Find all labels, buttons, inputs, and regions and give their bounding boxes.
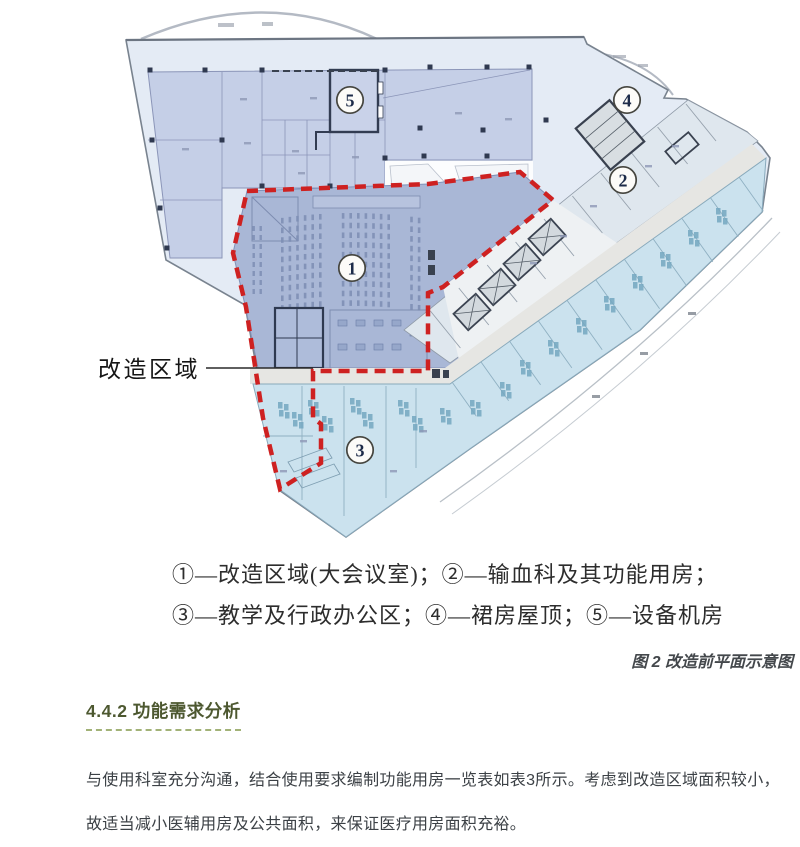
label-mark — [300, 440, 307, 442]
seat-mark — [319, 224, 322, 230]
seat-mark — [296, 255, 299, 261]
furniture-mark — [549, 348, 554, 355]
furniture-mark — [405, 410, 410, 417]
furniture-mark — [292, 412, 297, 419]
seat-mark — [410, 294, 413, 300]
seat-mark — [357, 223, 360, 229]
region-marker-3: 3 — [347, 437, 373, 463]
seat-mark — [311, 253, 314, 259]
furniture-mark — [447, 418, 452, 425]
furniture-mark — [278, 402, 283, 409]
seat-mark — [296, 274, 299, 280]
column-dot — [260, 184, 265, 189]
column-dot — [485, 154, 490, 159]
seat-mark — [372, 262, 375, 268]
label-mark — [455, 112, 462, 114]
seat-mark — [289, 294, 292, 300]
furniture-mark — [576, 318, 581, 325]
marker-digit: 5 — [346, 91, 355, 111]
seat-mark — [372, 291, 375, 297]
seat-mark — [365, 281, 368, 287]
seat-mark — [311, 273, 314, 279]
seat-mark — [387, 244, 390, 250]
furniture-mark — [527, 370, 532, 377]
seat-mark — [357, 242, 360, 248]
seat-mark — [253, 226, 255, 231]
seat-mark — [349, 232, 352, 238]
furniture-mark — [548, 340, 553, 347]
body-line-1: 与使用科室充分沟通，结合使用要求编制功能用房一览表如表3所示。考虑到改造区域面积… — [86, 759, 800, 803]
seat-mark — [289, 217, 292, 223]
seat-mark — [304, 273, 307, 279]
column-dot — [544, 118, 549, 123]
seat-mark — [296, 294, 299, 300]
furniture-mark — [356, 400, 361, 407]
seat-mark — [418, 218, 421, 224]
label-mark — [530, 262, 537, 264]
seat-mark — [349, 291, 352, 297]
seat-mark — [380, 282, 383, 288]
seat-mark — [311, 302, 314, 308]
furniture-mark — [689, 238, 694, 245]
seat-mark — [311, 263, 314, 269]
seat-mark — [253, 262, 255, 267]
furniture-mark — [722, 210, 727, 217]
seat-mark — [289, 246, 292, 252]
seat-mark — [289, 275, 292, 281]
figure-key: ①—改造区域(大会议室)；②—输血科及其功能用房； ③—教学及行政办公区；④—裙… — [172, 554, 800, 636]
furniture-mark — [418, 418, 423, 425]
furniture-mark — [605, 304, 610, 311]
furniture-mark — [298, 414, 303, 421]
column-dot — [260, 68, 265, 73]
seat-mark — [281, 237, 284, 243]
seat-mark — [410, 226, 413, 232]
seat-mark — [372, 233, 375, 239]
column-dot — [150, 138, 155, 143]
seat-mark — [410, 275, 413, 281]
seat-mark — [418, 266, 421, 272]
seat-mark — [349, 242, 352, 248]
seat-mark — [410, 236, 413, 242]
furniture-mark — [520, 360, 525, 367]
seat-mark — [380, 224, 383, 230]
furniture-mark — [293, 420, 298, 427]
seat-mark — [281, 276, 284, 282]
seat-mark — [410, 255, 413, 261]
seat-mark — [289, 285, 292, 291]
seat-mark — [296, 245, 299, 251]
seat-mark — [365, 291, 368, 297]
seat-mark — [410, 304, 413, 310]
seat-mark — [372, 301, 375, 307]
furniture-mark — [501, 390, 506, 397]
seat-mark — [260, 280, 262, 285]
seat-mark — [357, 300, 360, 306]
furniture-mark — [285, 412, 290, 419]
furniture-mark — [667, 262, 672, 269]
column-dot — [383, 68, 388, 73]
marker-digit: 2 — [619, 171, 628, 191]
seat-mark — [418, 286, 421, 292]
wall-mark — [443, 370, 449, 378]
seat-mark — [357, 213, 360, 219]
seat-mark — [281, 247, 284, 253]
seat-mark — [319, 292, 322, 298]
seat-mark — [289, 265, 292, 271]
door-mark — [378, 82, 383, 94]
seat-mark — [380, 272, 383, 278]
section-heading: 4.4.2 功能需求分析 — [86, 698, 241, 731]
seat-mark — [342, 223, 345, 229]
seat-mark — [304, 264, 307, 270]
furniture-mark — [322, 416, 327, 423]
seat-mark — [380, 292, 383, 298]
figure-key-line1: ①—改造区域(大会议室)；②—输血科及其功能用房； — [172, 554, 800, 595]
seat-mark — [342, 281, 345, 287]
seat-mark — [380, 243, 383, 249]
stage — [313, 196, 420, 208]
seat-mark — [342, 242, 345, 248]
seat-mark — [387, 234, 390, 240]
furniture-mark — [526, 362, 531, 369]
furniture-mark — [284, 404, 289, 411]
furniture-mark — [362, 412, 367, 419]
furniture-mark — [329, 426, 334, 433]
seat-mark — [311, 292, 314, 298]
seat-mark — [342, 213, 345, 219]
seat-mark — [387, 273, 390, 279]
seat-mark — [342, 300, 345, 306]
seat-mark — [311, 282, 314, 288]
label-mark — [672, 145, 679, 147]
column-dot — [148, 68, 153, 73]
seat-mark — [365, 252, 368, 258]
seat-mark — [365, 213, 368, 219]
seat-mark — [372, 214, 375, 220]
column-dot — [165, 246, 170, 251]
furniture-mark — [351, 406, 356, 413]
furniture-mark — [582, 320, 587, 327]
seat-mark — [253, 271, 255, 276]
seat-mark — [372, 281, 375, 287]
seat-mark — [357, 291, 360, 297]
seat-mark — [342, 232, 345, 238]
seat-mark — [372, 243, 375, 249]
seat-mark — [281, 257, 284, 263]
figure-caption: 图 2 改造前平面示意图 — [0, 648, 800, 672]
column-dot — [383, 156, 388, 161]
seat-mark — [304, 235, 307, 241]
seat-mark — [260, 262, 262, 267]
seat-mark — [289, 236, 292, 242]
furniture-mark — [507, 392, 512, 399]
label-mark — [420, 430, 427, 432]
seat-mark — [260, 271, 262, 276]
seat-mark — [281, 295, 284, 301]
furniture-mark — [328, 418, 333, 425]
furniture-mark — [610, 298, 615, 305]
seat-mark — [387, 302, 390, 308]
seat-mark — [380, 233, 383, 239]
seat-mark — [281, 228, 284, 234]
seat-mark — [319, 282, 322, 288]
seat-mark — [319, 262, 322, 268]
seat-mark — [410, 265, 413, 271]
column-dot — [203, 68, 208, 73]
marker-digit: 3 — [356, 441, 365, 461]
furniture-mark — [412, 416, 417, 423]
seat-mark — [349, 300, 352, 306]
seat-mark — [387, 214, 390, 220]
region-marker-2: 2 — [610, 167, 636, 193]
seat-mark — [311, 224, 314, 230]
seat-mark — [319, 253, 322, 259]
marker-digit: 4 — [623, 91, 632, 111]
seat-mark — [365, 301, 368, 307]
seat-mark — [253, 253, 255, 258]
seat-mark — [410, 246, 413, 252]
seat-mark — [304, 244, 307, 250]
furniture-mark — [363, 420, 368, 427]
furniture-mark — [470, 400, 475, 407]
seat-mark — [357, 232, 360, 238]
marker-digit: 1 — [348, 259, 357, 279]
furniture-mark — [413, 424, 418, 431]
furniture-mark — [717, 216, 722, 223]
seat-mark — [418, 295, 421, 301]
label-mark — [505, 118, 512, 120]
furniture-mark — [666, 254, 671, 261]
furniture-mark — [471, 408, 476, 415]
label-mark — [560, 235, 567, 237]
region-marker-1: 1 — [339, 255, 365, 281]
label-mark — [280, 470, 287, 472]
seat-mark — [387, 263, 390, 269]
column-dot — [527, 65, 532, 70]
label-mark — [182, 148, 189, 150]
seat-mark — [260, 289, 262, 294]
seat-mark — [410, 285, 413, 291]
label-mark — [310, 97, 317, 99]
furniture-mark — [611, 306, 616, 313]
seat-mark — [319, 214, 322, 220]
column-dot — [485, 65, 490, 70]
seat-mark — [296, 284, 299, 290]
seat-mark — [253, 235, 255, 240]
seat-mark — [304, 283, 307, 289]
roof-arc-outer — [141, 13, 377, 40]
region-marker-5: 5 — [337, 87, 363, 113]
seat-mark — [311, 215, 314, 221]
furniture-mark — [477, 410, 482, 417]
seat-mark — [372, 252, 375, 258]
furniture-mark — [639, 284, 644, 291]
body-line-2: 故适当减小医辅用房及公共面积，来保证医疗用房面积充裕。 — [86, 803, 800, 847]
seat-mark — [380, 214, 383, 220]
furniture-mark — [583, 328, 588, 335]
furniture-mark — [723, 218, 728, 225]
seat-mark — [304, 215, 307, 221]
seat-mark — [380, 301, 383, 307]
furniture-mark — [476, 402, 481, 409]
seat-mark — [304, 254, 307, 260]
furniture-mark — [279, 410, 284, 417]
seat-mark — [281, 266, 284, 272]
seat-mark — [260, 235, 262, 240]
seat-mark — [342, 291, 345, 297]
furniture-mark — [368, 414, 373, 421]
seat-mark — [281, 286, 284, 292]
furniture-mark — [441, 416, 446, 423]
seat-mark — [319, 272, 322, 278]
section-heading-row: 4.4.2 功能需求分析 — [86, 698, 800, 731]
seat-mark — [357, 281, 360, 287]
region-marker-4: 4 — [614, 87, 640, 113]
furniture-mark — [369, 422, 374, 429]
seat-mark — [387, 282, 390, 288]
av-room — [275, 308, 323, 368]
seat-mark — [260, 226, 262, 231]
furniture-mark — [500, 382, 505, 389]
label-mark — [645, 165, 652, 167]
seat-mark — [319, 243, 322, 249]
seat-mark — [418, 247, 421, 253]
seat-mark — [418, 227, 421, 233]
seat-mark — [387, 224, 390, 230]
furniture-mark — [661, 260, 666, 267]
label-mark — [390, 470, 397, 472]
seat-mark — [365, 242, 368, 248]
seat-mark — [296, 235, 299, 241]
floor-plan: 改造区域 1 2 3 4 5 — [0, 0, 800, 548]
seat-mark — [311, 234, 314, 240]
furniture-mark — [323, 424, 328, 431]
seat-mark — [418, 256, 421, 262]
label-mark — [240, 98, 247, 100]
seat-mark — [296, 264, 299, 270]
seat-mark — [418, 276, 421, 282]
seat-mark — [380, 253, 383, 259]
column-dot — [220, 138, 225, 143]
furniture-mark — [446, 410, 451, 417]
furniture-mark — [357, 408, 362, 415]
furniture-mark — [716, 208, 721, 215]
furniture-mark — [604, 296, 609, 303]
furniture-mark — [555, 350, 560, 357]
column-dot — [422, 154, 427, 159]
seat-mark — [253, 244, 255, 249]
seat-mark — [387, 292, 390, 298]
seat-mark — [372, 223, 375, 229]
furniture-mark — [633, 282, 638, 289]
seat-mark — [289, 227, 292, 233]
seat-mark — [281, 218, 284, 224]
seat-mark — [319, 233, 322, 239]
furniture-mark — [554, 342, 559, 349]
furniture-mark — [506, 384, 511, 391]
document-page: 改造区域 1 2 3 4 5 ①—改造区域 — [0, 0, 800, 847]
seat-mark — [304, 293, 307, 299]
furniture-mark — [398, 400, 403, 407]
furniture-mark — [660, 252, 665, 259]
seat-mark — [387, 253, 390, 259]
figure-key-line2: ③—教学及行政办公区；④—裙房屋顶；⑤—设备机房 — [172, 595, 800, 636]
furniture-mark — [404, 402, 409, 409]
seat-mark — [253, 289, 255, 294]
seat-mark — [253, 280, 255, 285]
furniture-mark — [299, 422, 304, 429]
furniture-mark — [577, 326, 582, 333]
seat-mark — [289, 256, 292, 262]
furniture-mark — [308, 400, 313, 407]
furniture-mark — [688, 230, 693, 237]
label-mark — [352, 156, 359, 158]
seat-mark — [372, 272, 375, 278]
seat-mark — [319, 301, 322, 307]
body-paragraph: 与使用科室充分沟通，结合使用要求编制功能用房一览表如表3所示。考虑到改造区域面积… — [86, 759, 800, 847]
furniture-mark — [399, 408, 404, 415]
seat-mark — [260, 244, 262, 249]
furniture-mark — [695, 240, 700, 247]
column-dot — [481, 128, 486, 133]
label-mark — [292, 150, 299, 152]
floor-plan-figure: 改造区域 1 2 3 4 5 — [0, 0, 800, 548]
label-mark — [298, 172, 305, 174]
label-mark — [244, 142, 251, 144]
column-dot — [158, 206, 163, 211]
furniture-mark — [440, 408, 445, 415]
label-mark — [590, 205, 597, 207]
wall-mark — [432, 369, 440, 378]
furniture-mark — [638, 276, 643, 283]
furniture-mark — [350, 398, 355, 405]
column-dot — [428, 65, 433, 70]
wall-mark — [428, 250, 435, 260]
seat-mark — [304, 225, 307, 231]
seat-mark — [418, 237, 421, 243]
area-label: 改造区域 — [98, 357, 200, 382]
seat-mark — [296, 216, 299, 222]
furniture-mark — [521, 368, 526, 375]
seat-mark — [380, 262, 383, 268]
furniture-mark — [694, 232, 699, 239]
seat-mark — [365, 223, 368, 229]
furniture-mark — [315, 410, 320, 417]
furniture-mark — [632, 274, 637, 281]
seat-mark — [349, 213, 352, 219]
seat-mark — [311, 244, 314, 250]
seat-mark — [296, 226, 299, 232]
seat-mark — [410, 217, 413, 223]
seat-mark — [349, 223, 352, 229]
seat-mark — [260, 253, 262, 258]
column-dot — [418, 126, 423, 131]
wall-mark — [428, 265, 435, 275]
door-mark — [378, 106, 383, 118]
seat-mark — [365, 233, 368, 239]
